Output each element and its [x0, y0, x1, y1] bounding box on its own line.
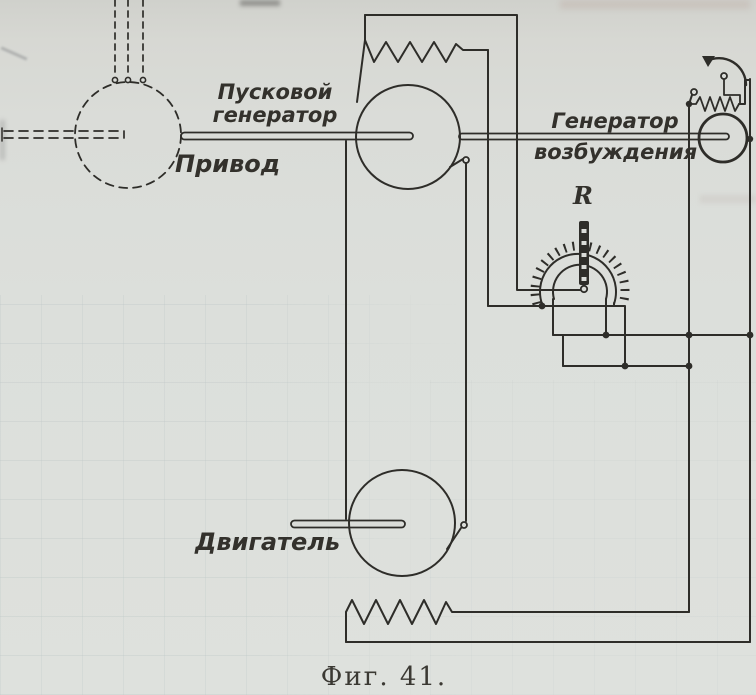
- brush-lead: [357, 40, 365, 102]
- shaft-group: [181, 133, 729, 528]
- terminal-circle: [112, 77, 117, 82]
- book-page: Пусковой генератор Привод Генератор возб…: [0, 0, 756, 695]
- motor-shaft-bar: [291, 521, 405, 528]
- rheostat-right-legs: [606, 299, 614, 335]
- rheostat-R-symbol: [535, 221, 625, 335]
- field-resistor-bottom: [346, 600, 689, 624]
- supply-line-icon: [115, 0, 143, 76]
- terminal-circle: [140, 77, 145, 82]
- dashed-shaft: [4, 131, 124, 138]
- drive-symbol: [2, 0, 181, 188]
- wiper-arrow-arc: [707, 58, 746, 85]
- exciter-circuit: [689, 56, 750, 642]
- top-circuit: [357, 15, 625, 366]
- top-wire: [365, 15, 580, 290]
- circuit-diagram: [0, 0, 756, 695]
- terminal-link: [690, 95, 692, 101]
- exciter-field-rheostat: [690, 97, 739, 111]
- drive-circle: [75, 82, 181, 188]
- brush-circle-bottom: [461, 522, 467, 528]
- slider-foot-circle: [581, 286, 587, 292]
- shaft-bar-left: [181, 133, 413, 140]
- wiper-pivot-circle: [721, 73, 727, 79]
- wiper-arrowhead: [702, 56, 715, 67]
- field-resistor-top: [365, 40, 488, 62]
- armature-loop: [346, 141, 469, 549]
- junction-dots: [539, 101, 754, 370]
- junction-buses: [553, 335, 750, 366]
- terminal-circle: [125, 77, 130, 82]
